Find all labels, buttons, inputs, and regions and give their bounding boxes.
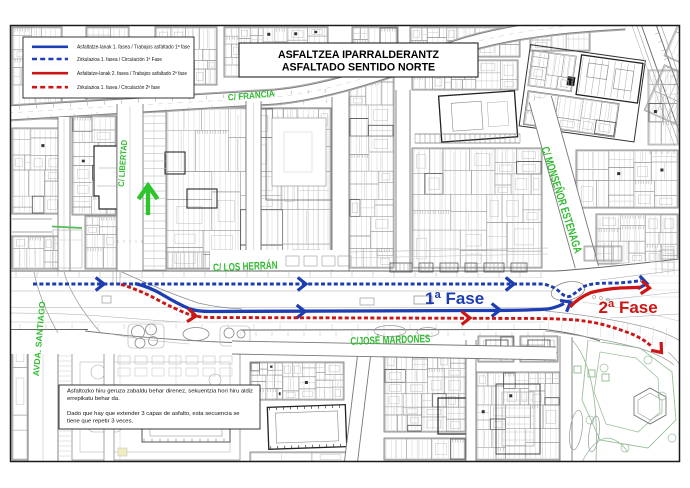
svg-text:errepikatu behar da.: errepikatu behar da.: [67, 396, 120, 402]
svg-text:Asfaltatze-lanak 1. fasea / Tr: Asfaltatze-lanak 1. fasea / Trabajos asf…: [77, 45, 190, 51]
svg-text:Zirkulazioa 1. fasea / Circula: Zirkulazioa 1. fasea / Circulación 1ª Fa…: [77, 57, 162, 63]
svg-text:Asfaltatze-lanak 2. fasea / Tr: Asfaltatze-lanak 2. fasea / Trabajos asf…: [77, 71, 187, 77]
svg-text:ASFALTADO SENTIDO NORTE: ASFALTADO SENTIDO NORTE: [282, 62, 435, 74]
svg-text:1ª Fase: 1ª Fase: [425, 289, 484, 308]
svg-text:Asfaltozko hiru geruza zabaldu: Asfaltozko hiru geruza zabaldu behar dir…: [67, 389, 253, 395]
svg-text:2ª Fase: 2ª Fase: [599, 298, 658, 317]
svg-text:tiene que repetir 3 veces.: tiene que repetir 3 veces.: [67, 419, 134, 425]
svg-text:Dado que hay que extender 3 ca: Dado que hay que extender 3 capas de asf…: [67, 411, 240, 417]
svg-text:Zirkulazioa 1. fasea / Circula: Zirkulazioa 1. fasea / Circulación 2ª fa…: [77, 85, 160, 91]
svg-text:ASFALTZEA IPARRALDERANTZ: ASFALTZEA IPARRALDERANTZ: [278, 49, 440, 61]
